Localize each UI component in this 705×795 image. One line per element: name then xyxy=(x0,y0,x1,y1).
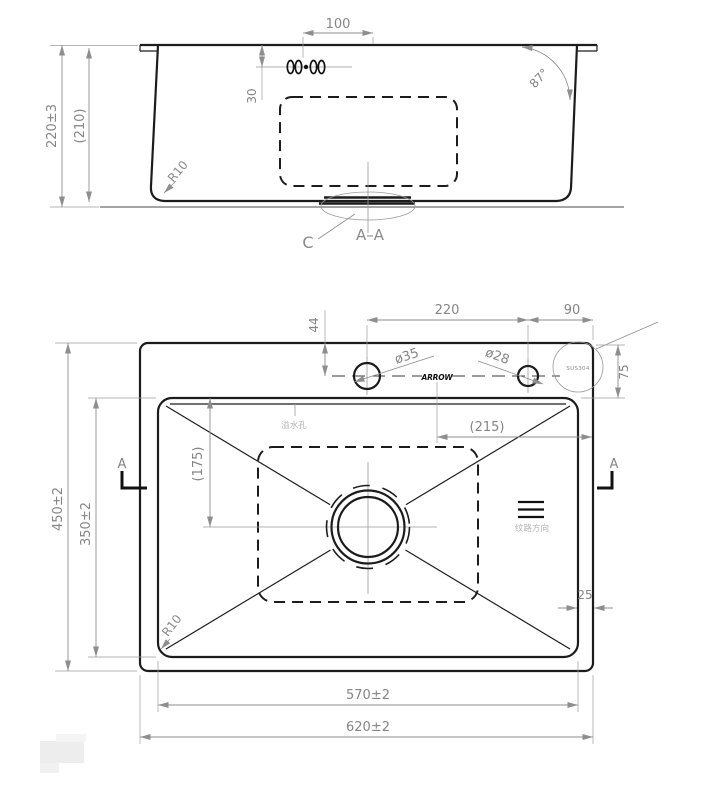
dim-220-3: 220±3 xyxy=(45,45,138,207)
dim-soap-dia: ø28 xyxy=(478,345,543,384)
material-badge: SUS304 xyxy=(553,322,658,392)
dim-220-label: 220 xyxy=(435,303,460,318)
watermark xyxy=(40,734,86,773)
detail-c-label: C xyxy=(302,233,313,252)
dim-overall-depth-label: 450±2 xyxy=(51,487,66,531)
section-a-left-label: A xyxy=(118,457,127,472)
grain-direction-label: 纹路方向 xyxy=(515,523,549,534)
dim-r10-section-label: R10 xyxy=(165,158,191,185)
dim-215-ref: (215) xyxy=(437,382,592,443)
dim-100: 100 xyxy=(303,17,373,58)
dim-450: 450±2 xyxy=(51,343,137,671)
dim-bowl-depth-label: 350±2 xyxy=(79,502,94,546)
dim-r10-plan: R10 xyxy=(159,612,185,649)
dim-87deg: 87° xyxy=(522,47,570,100)
dim-30-label: 30 xyxy=(245,88,259,103)
section-marker-right: A xyxy=(597,457,619,488)
dim-75-label: 75 xyxy=(617,364,631,379)
plan-view: ARROW ø35 ø28 44 220 90 xyxy=(51,303,658,744)
dim-r10-section: R10 xyxy=(164,158,191,193)
section-a-right-label: A xyxy=(610,457,619,472)
drawing-canvas: 100 30 220±3 (210) R10 87° xyxy=(0,0,705,795)
dim-height-label: 220±3 xyxy=(45,104,60,148)
dim-175-label: (175) xyxy=(191,447,206,482)
dim-angle-label: 87° xyxy=(527,66,552,91)
dim-25-label: 25 xyxy=(577,588,592,602)
dim-350: 350±2 xyxy=(79,398,156,657)
dim-30: 30 xyxy=(245,45,262,104)
dim-210-ref: (210) xyxy=(73,48,89,202)
dim-r10-plan-label: R10 xyxy=(159,612,185,639)
section-left-wall xyxy=(151,45,164,201)
dim-faucet-dia-label: ø35 xyxy=(393,346,421,368)
drain xyxy=(203,462,437,594)
dim-90-label: 90 xyxy=(564,303,581,318)
grain-direction: 纹路方向 xyxy=(515,502,549,534)
dim-175-ref: (175) xyxy=(191,398,210,527)
material-label: SUS304 xyxy=(566,366,590,372)
brand-logo: ARROW xyxy=(420,373,453,382)
sink-technical-drawing: 100 30 220±3 (210) R10 87° xyxy=(0,0,705,795)
detail-c-leader xyxy=(318,214,355,239)
dim-215-label: (215) xyxy=(470,420,505,435)
overflow-note: 溢水孔 xyxy=(281,404,307,431)
dim-570: 570±2 xyxy=(158,661,578,712)
hidden-bowl-outline xyxy=(280,97,457,186)
section-title: A–A xyxy=(356,226,385,244)
dim-overall-width-label: 620±2 xyxy=(346,720,390,735)
faucet-holes-icon xyxy=(256,61,352,74)
section-right-wall xyxy=(557,45,577,201)
dim-620: 620±2 xyxy=(140,675,593,744)
dim-height-ref-label: (210) xyxy=(73,109,88,144)
section-view: 100 30 220±3 (210) R10 87° xyxy=(45,17,624,252)
dim-44-label: 44 xyxy=(307,317,321,332)
dim-100-label: 100 xyxy=(326,17,351,32)
dim-bowl-width-label: 570±2 xyxy=(346,688,390,703)
overflow-label: 溢水孔 xyxy=(281,420,307,431)
dim-25: 25 xyxy=(558,588,613,608)
section-marker-left: A xyxy=(118,457,147,488)
